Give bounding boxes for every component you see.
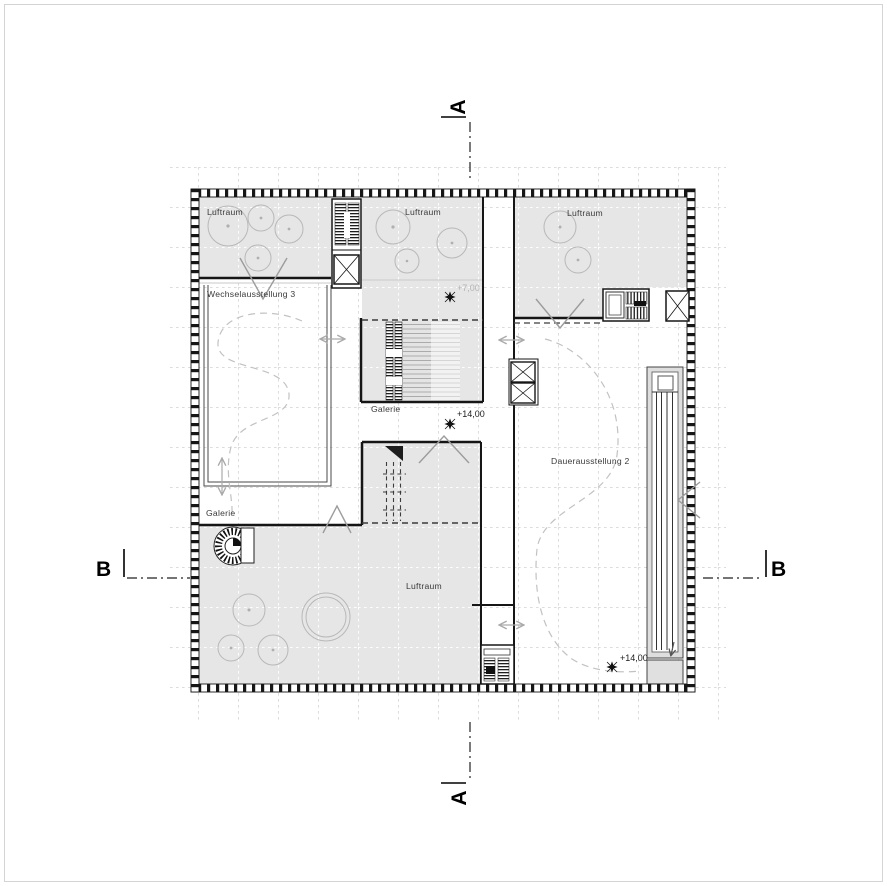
elevation-point-icon	[444, 418, 455, 429]
elevation-point-icon	[444, 291, 455, 302]
elevator-pair-mid	[509, 359, 538, 405]
label-luftraum-top-center: Luftraum	[405, 207, 441, 217]
elevator-icon	[511, 362, 535, 382]
label-wechselausstellung: Wechselausstellung 3	[207, 289, 295, 299]
floor-plan-page: A A B B +7,00 +14,00 +14,00 Luftraum Luf…	[0, 0, 887, 886]
label-galerie-center: Galerie	[371, 404, 400, 414]
label-galerie-left: Galerie	[206, 508, 235, 518]
stair-flight	[498, 658, 509, 681]
stair-flight	[626, 307, 647, 319]
section-letter-a-top: A	[447, 99, 470, 114]
elevator-icon	[334, 255, 359, 284]
elevation-gallery-center: +14,00	[457, 409, 485, 419]
spiral-stair	[214, 527, 254, 565]
elevator-icon	[666, 291, 689, 321]
elevation-upper: +7,00	[457, 283, 480, 293]
section-letter-b-left: B	[96, 558, 111, 581]
main-stair	[386, 322, 460, 400]
label-luftraum-top-left: Luftraum	[207, 207, 243, 217]
section-letter-a-bottom: A	[448, 790, 471, 805]
ramp	[647, 367, 683, 684]
label-luftraum-top-right: Luftraum	[567, 208, 603, 218]
label-dauerausstellung: Dauerausstellung 2	[551, 456, 630, 466]
elevator-icon	[511, 383, 535, 403]
section-letter-b-right: B	[771, 558, 786, 581]
stair-core-bottom	[481, 645, 514, 684]
stair-core-top-left	[332, 199, 361, 288]
floor-plan-drawing: A A B B +7,00 +14,00 +14,00 Luftraum Luf…	[0, 0, 887, 886]
label-luftraum-bottom: Luftraum	[406, 581, 442, 591]
elevation-gallery-right: +14,00	[620, 653, 648, 663]
section-marker-a-bottom: A	[441, 722, 471, 806]
stair-core-top-right	[603, 289, 689, 321]
elevation-point-icon	[606, 661, 617, 672]
ramp-landing	[647, 660, 683, 684]
